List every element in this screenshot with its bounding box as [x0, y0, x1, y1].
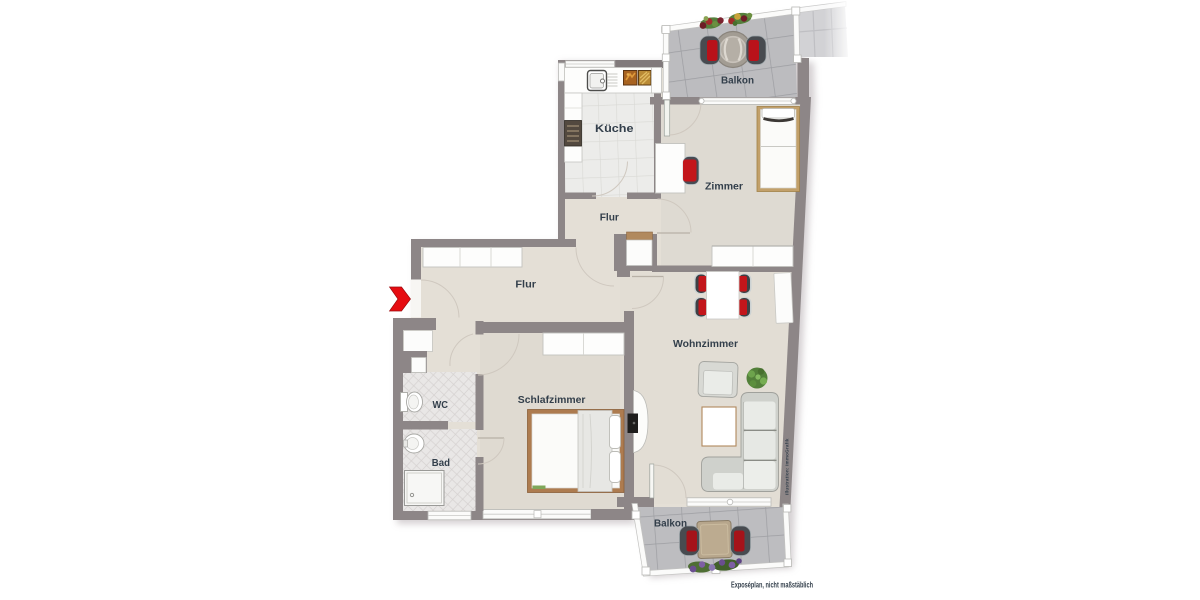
- svg-text:Wohnzimmer: Wohnzimmer: [673, 339, 738, 350]
- svg-text:Flur: Flur: [600, 212, 619, 223]
- svg-text:Balkon: Balkon: [721, 76, 754, 87]
- svg-text:Balkon: Balkon: [654, 519, 687, 530]
- svg-text:Flur: Flur: [515, 280, 536, 291]
- svg-text:Illustration: ImmoGrafik: Illustration: ImmoGrafik: [785, 438, 790, 495]
- svg-text:Küche: Küche: [595, 123, 634, 135]
- svg-text:WC: WC: [433, 400, 449, 411]
- svg-text:Exposéplan, nicht maßstäblich: Exposéplan, nicht maßstäblich: [731, 581, 813, 590]
- svg-text:Zimmer: Zimmer: [705, 182, 743, 193]
- svg-text:Bad: Bad: [432, 458, 450, 469]
- svg-text:Schlafzimmer: Schlafzimmer: [518, 395, 586, 406]
